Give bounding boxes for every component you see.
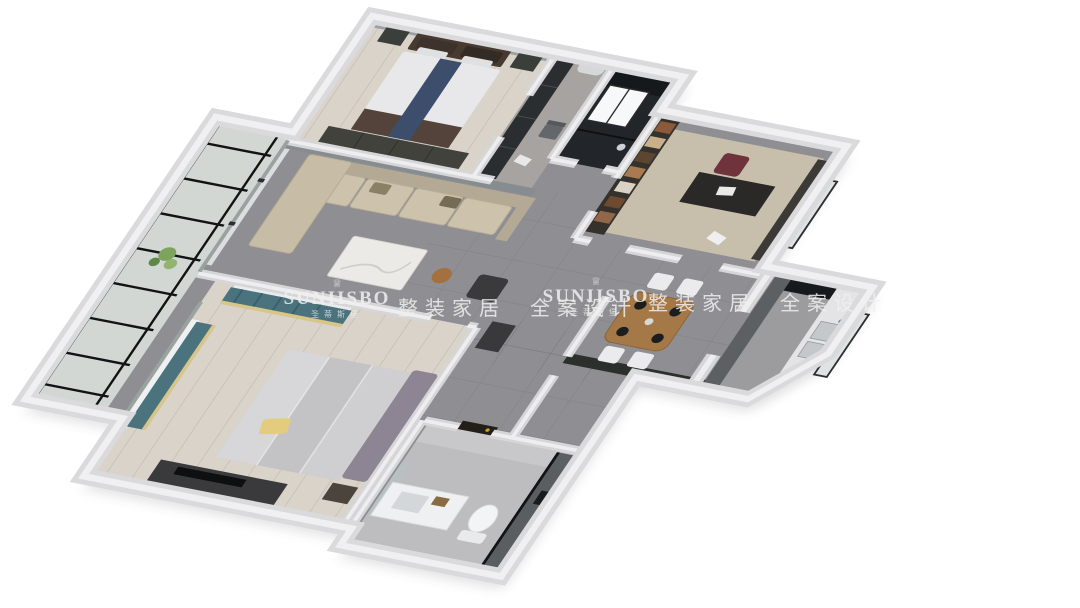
floorplan-render — [0, 0, 1080, 608]
yellow-pillow — [258, 418, 291, 434]
floorplan-screenshot: ♕ SUNIISBO 圣蒂斯堡 整装家居 全案设计 ♕ SUNIISBO 圣蒂斯… — [0, 0, 1080, 608]
